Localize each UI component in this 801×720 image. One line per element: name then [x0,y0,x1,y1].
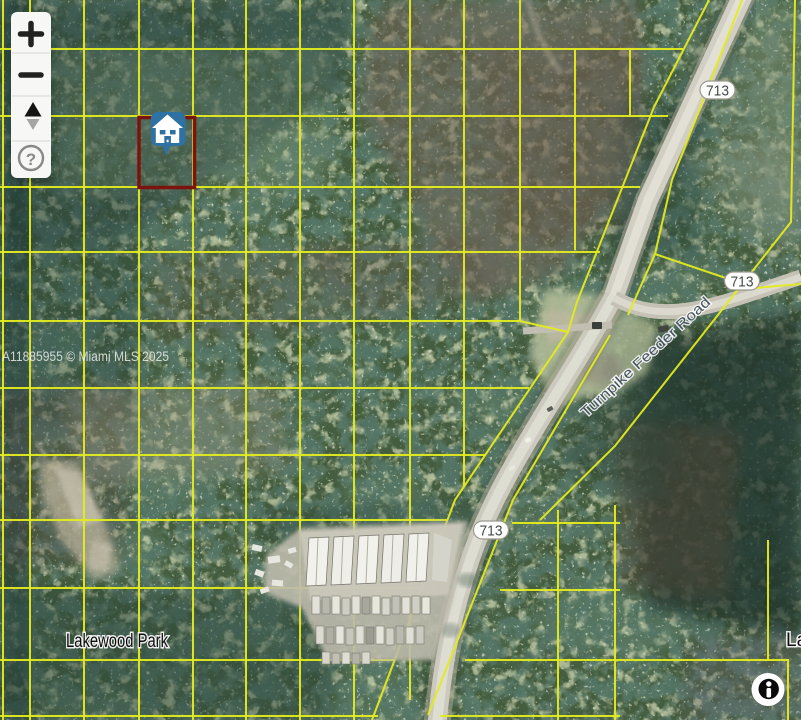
svg-text:713: 713 [480,524,503,540]
svg-text:713: 713 [731,275,754,291]
svg-text:A11885955 © Miami MLS 2025: A11885955 © Miami MLS 2025 [2,348,169,364]
svg-text:713: 713 [706,84,729,100]
svg-text:?: ? [26,150,36,169]
svg-text:Lakewood Park: Lakewood Park [66,631,168,652]
svg-text:La: La [786,630,801,651]
